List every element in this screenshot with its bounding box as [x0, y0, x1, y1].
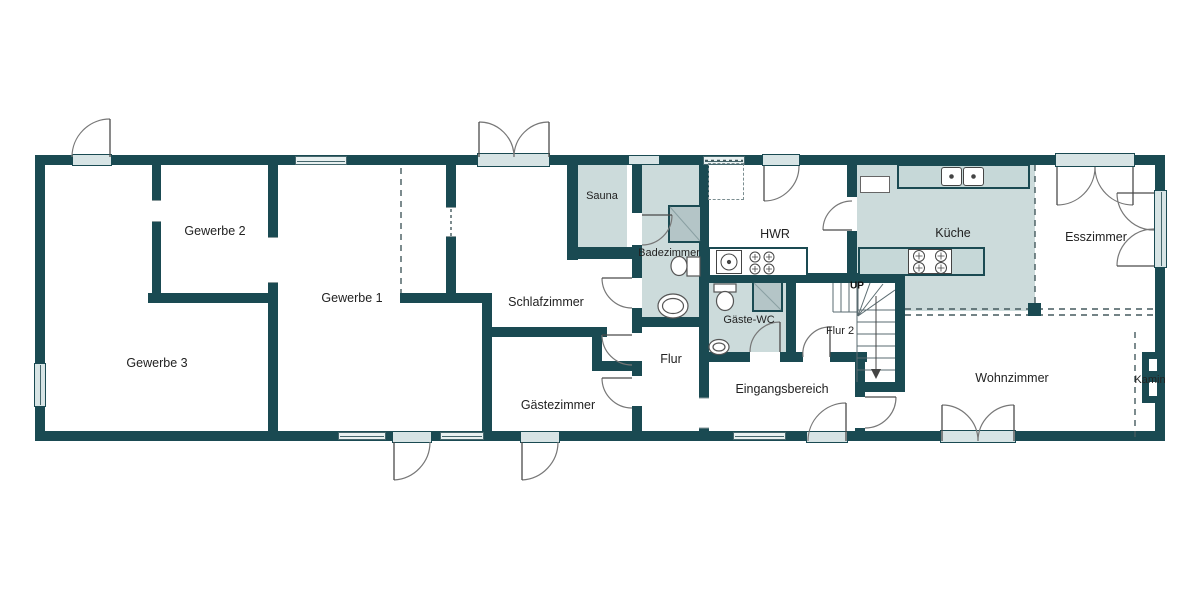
room-label-sauna: Sauna [586, 190, 618, 202]
room-label-schlafzimmer: Schlafzimmer [508, 295, 584, 309]
appliance-symbols [721, 175, 975, 274]
floor-plan: Gewerbe 2 Gewerbe 1 Gewerbe 3 Schlafzimm… [0, 0, 1200, 600]
toilet-tank [687, 257, 700, 276]
room-label-gewerbe1: Gewerbe 1 [321, 291, 382, 305]
room-label-kueche: Küche [935, 226, 970, 240]
door-leaves [110, 119, 1154, 480]
room-label-badezimmer: Badezimmer [638, 247, 700, 259]
room-label-esszimmer: Esszimmer [1065, 230, 1127, 244]
sink-drain [950, 175, 954, 179]
toilet-tank [714, 284, 736, 292]
door-swing-arcs [72, 119, 1154, 480]
column [1028, 303, 1041, 316]
stairs-up-label: UP [850, 281, 864, 292]
room-label-gewerbe2: Gewerbe 2 [184, 224, 245, 238]
door-jamb-ticks [699, 398, 709, 428]
room-label-hwr: HWR [760, 227, 790, 241]
toilet-bowl [671, 257, 687, 276]
room-label-kamin: Kamin [1134, 374, 1165, 386]
sink-drain [972, 175, 976, 179]
toilet-bowl [717, 292, 734, 311]
room-label-eingangsbereich: Eingangsbereich [735, 382, 828, 396]
room-label-wohnzimmer: Wohnzimmer [975, 371, 1048, 385]
room-label-flur: Flur [660, 352, 682, 366]
room-label-gaestezimmer: Gästezimmer [521, 398, 595, 412]
room-label-gaeste-wc: Gäste-WC [723, 314, 774, 326]
room-label-gewerbe3: Gewerbe 3 [126, 356, 187, 370]
plan-symbols [0, 0, 1200, 600]
room-label-flur2: Flur 2 [826, 325, 854, 337]
